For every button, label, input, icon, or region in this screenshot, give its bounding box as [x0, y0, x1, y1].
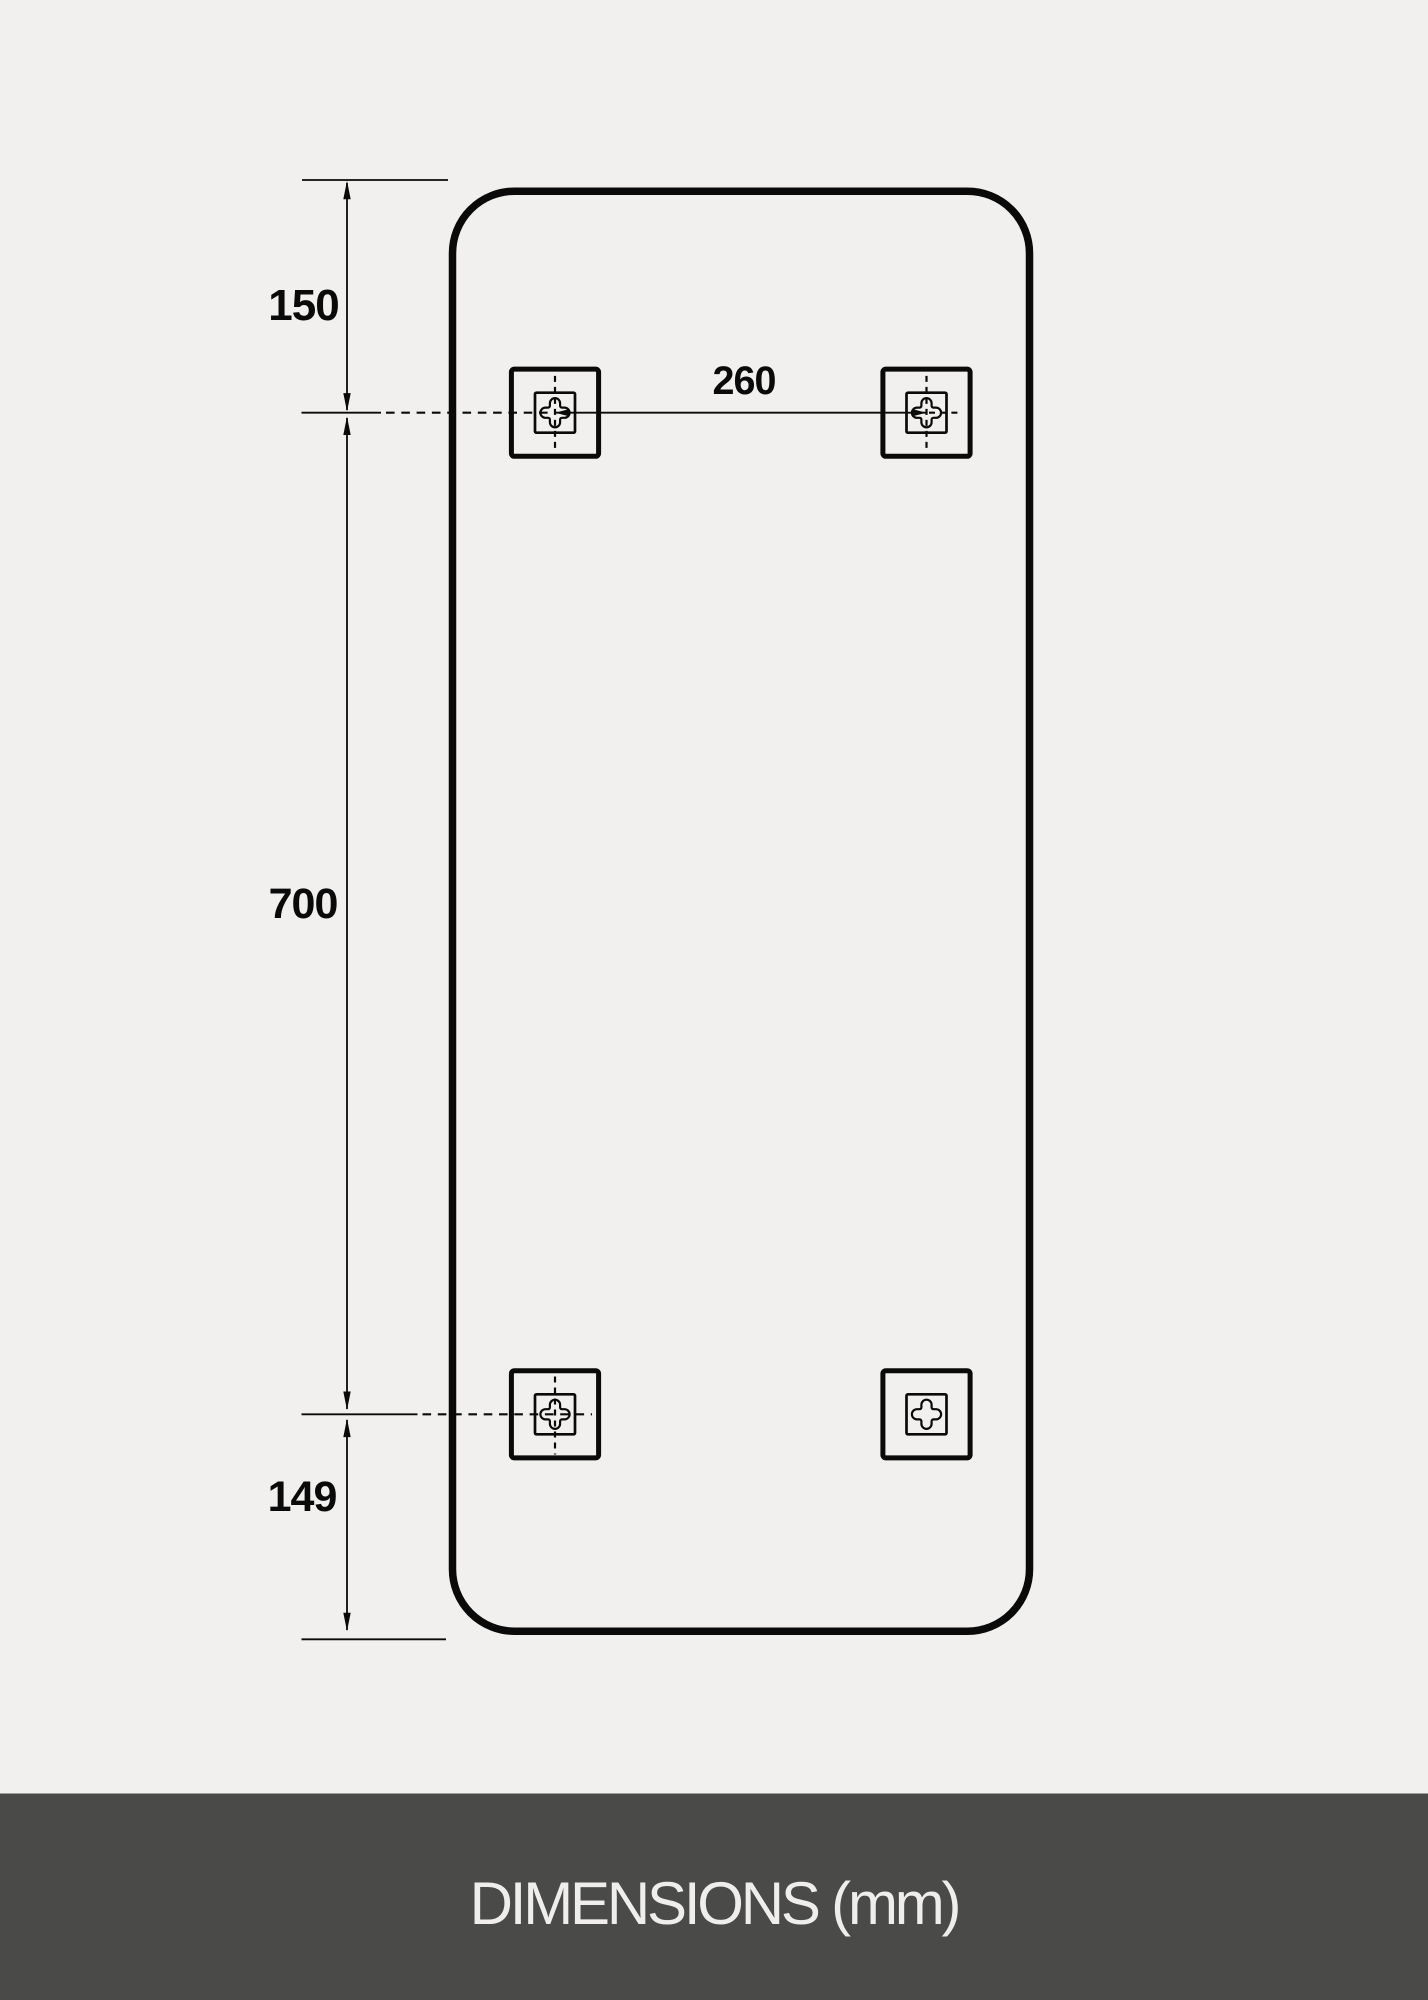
svg-text:DIMENSIONS (mm): DIMENSIONS (mm) — [470, 1870, 959, 1937]
svg-text:700: 700 — [269, 880, 338, 928]
svg-text:150: 150 — [268, 281, 338, 330]
svg-text:260: 260 — [713, 359, 776, 403]
svg-text:149: 149 — [268, 1473, 337, 1521]
